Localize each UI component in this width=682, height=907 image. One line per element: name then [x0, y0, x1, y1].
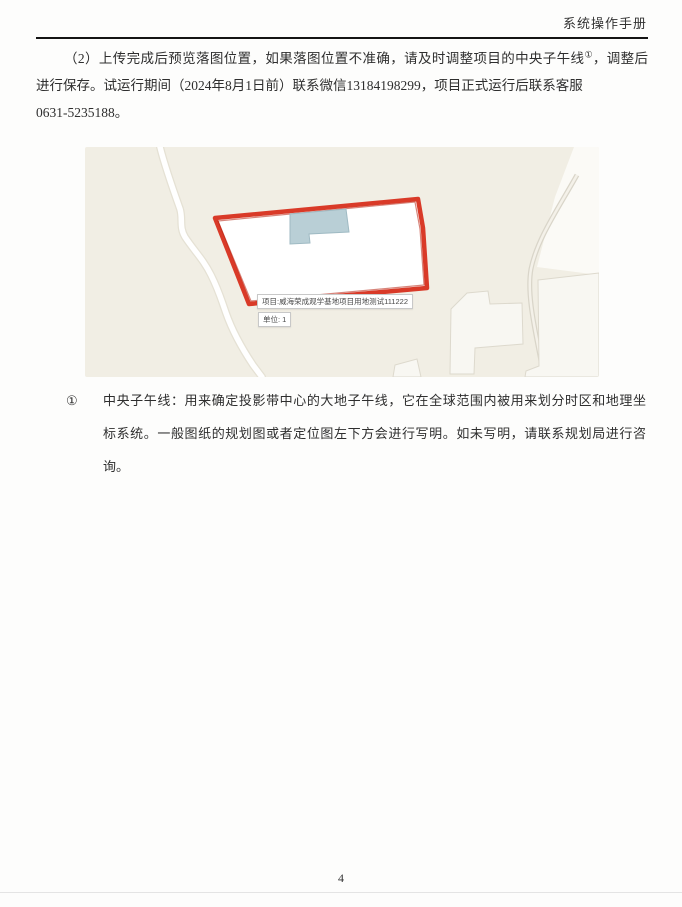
- body-paragraph-line-2: 进行保存。试运行期间（2024年8月1日前）联系微信13184198299，项目…: [36, 72, 648, 99]
- footer-rule: [0, 892, 682, 893]
- map-graphic: [85, 147, 599, 377]
- header-rule: [36, 37, 648, 39]
- footnote-reference-superscript: ①: [584, 50, 592, 60]
- map-tooltip-project: 项目:威海荣成观学基地项目用地测试111222: [257, 294, 413, 309]
- footnote-text: 中央子午线：用来确定投影带中心的大地子午线，它在全球范围内被用来划分时区和地理坐…: [103, 384, 646, 483]
- document-page: 系统操作手册 （2）上传完成后预览落图位置，如果落图位置不准确，请及时调整项目的…: [0, 0, 682, 907]
- body-paragraph-line-3: 0631-5235188。: [36, 99, 648, 126]
- map-tooltip-unit: 单位: 1: [258, 312, 291, 327]
- line1-text-after: ，调整后: [593, 51, 648, 66]
- footnote: ① 中央子午线：用来确定投影带中心的大地子午线，它在全球范围内被用来划分时区和地…: [66, 384, 648, 483]
- header-title: 系统操作手册: [563, 13, 647, 32]
- line1-text: （2）上传完成后预览落图位置，如果落图位置不准确，请及时调整项目的中央子午线: [64, 51, 584, 66]
- page-number: 4: [0, 871, 682, 886]
- body-paragraph-line-1: （2）上传完成后预览落图位置，如果落图位置不准确，请及时调整项目的中央子午线①，…: [36, 45, 648, 72]
- footnote-marker: ①: [66, 384, 103, 483]
- footnote-line-1: 中央子午线：用来确定投影带中心的大地子午线，它在全球范围内被用来划分时区和地理坐: [103, 384, 646, 417]
- footnote-line-2: 标系统。一般图纸的规划图或者定位图左下方会进行写明。如未写明，请联系规划局进行咨: [103, 417, 646, 450]
- body-paragraph: （2）上传完成后预览落图位置，如果落图位置不准确，请及时调整项目的中央子午线①，…: [36, 45, 648, 126]
- footnote-line-3: 询。: [103, 450, 646, 483]
- map-screenshot: 项目:威海荣成观学基地项目用地测试111222 单位: 1: [85, 147, 599, 377]
